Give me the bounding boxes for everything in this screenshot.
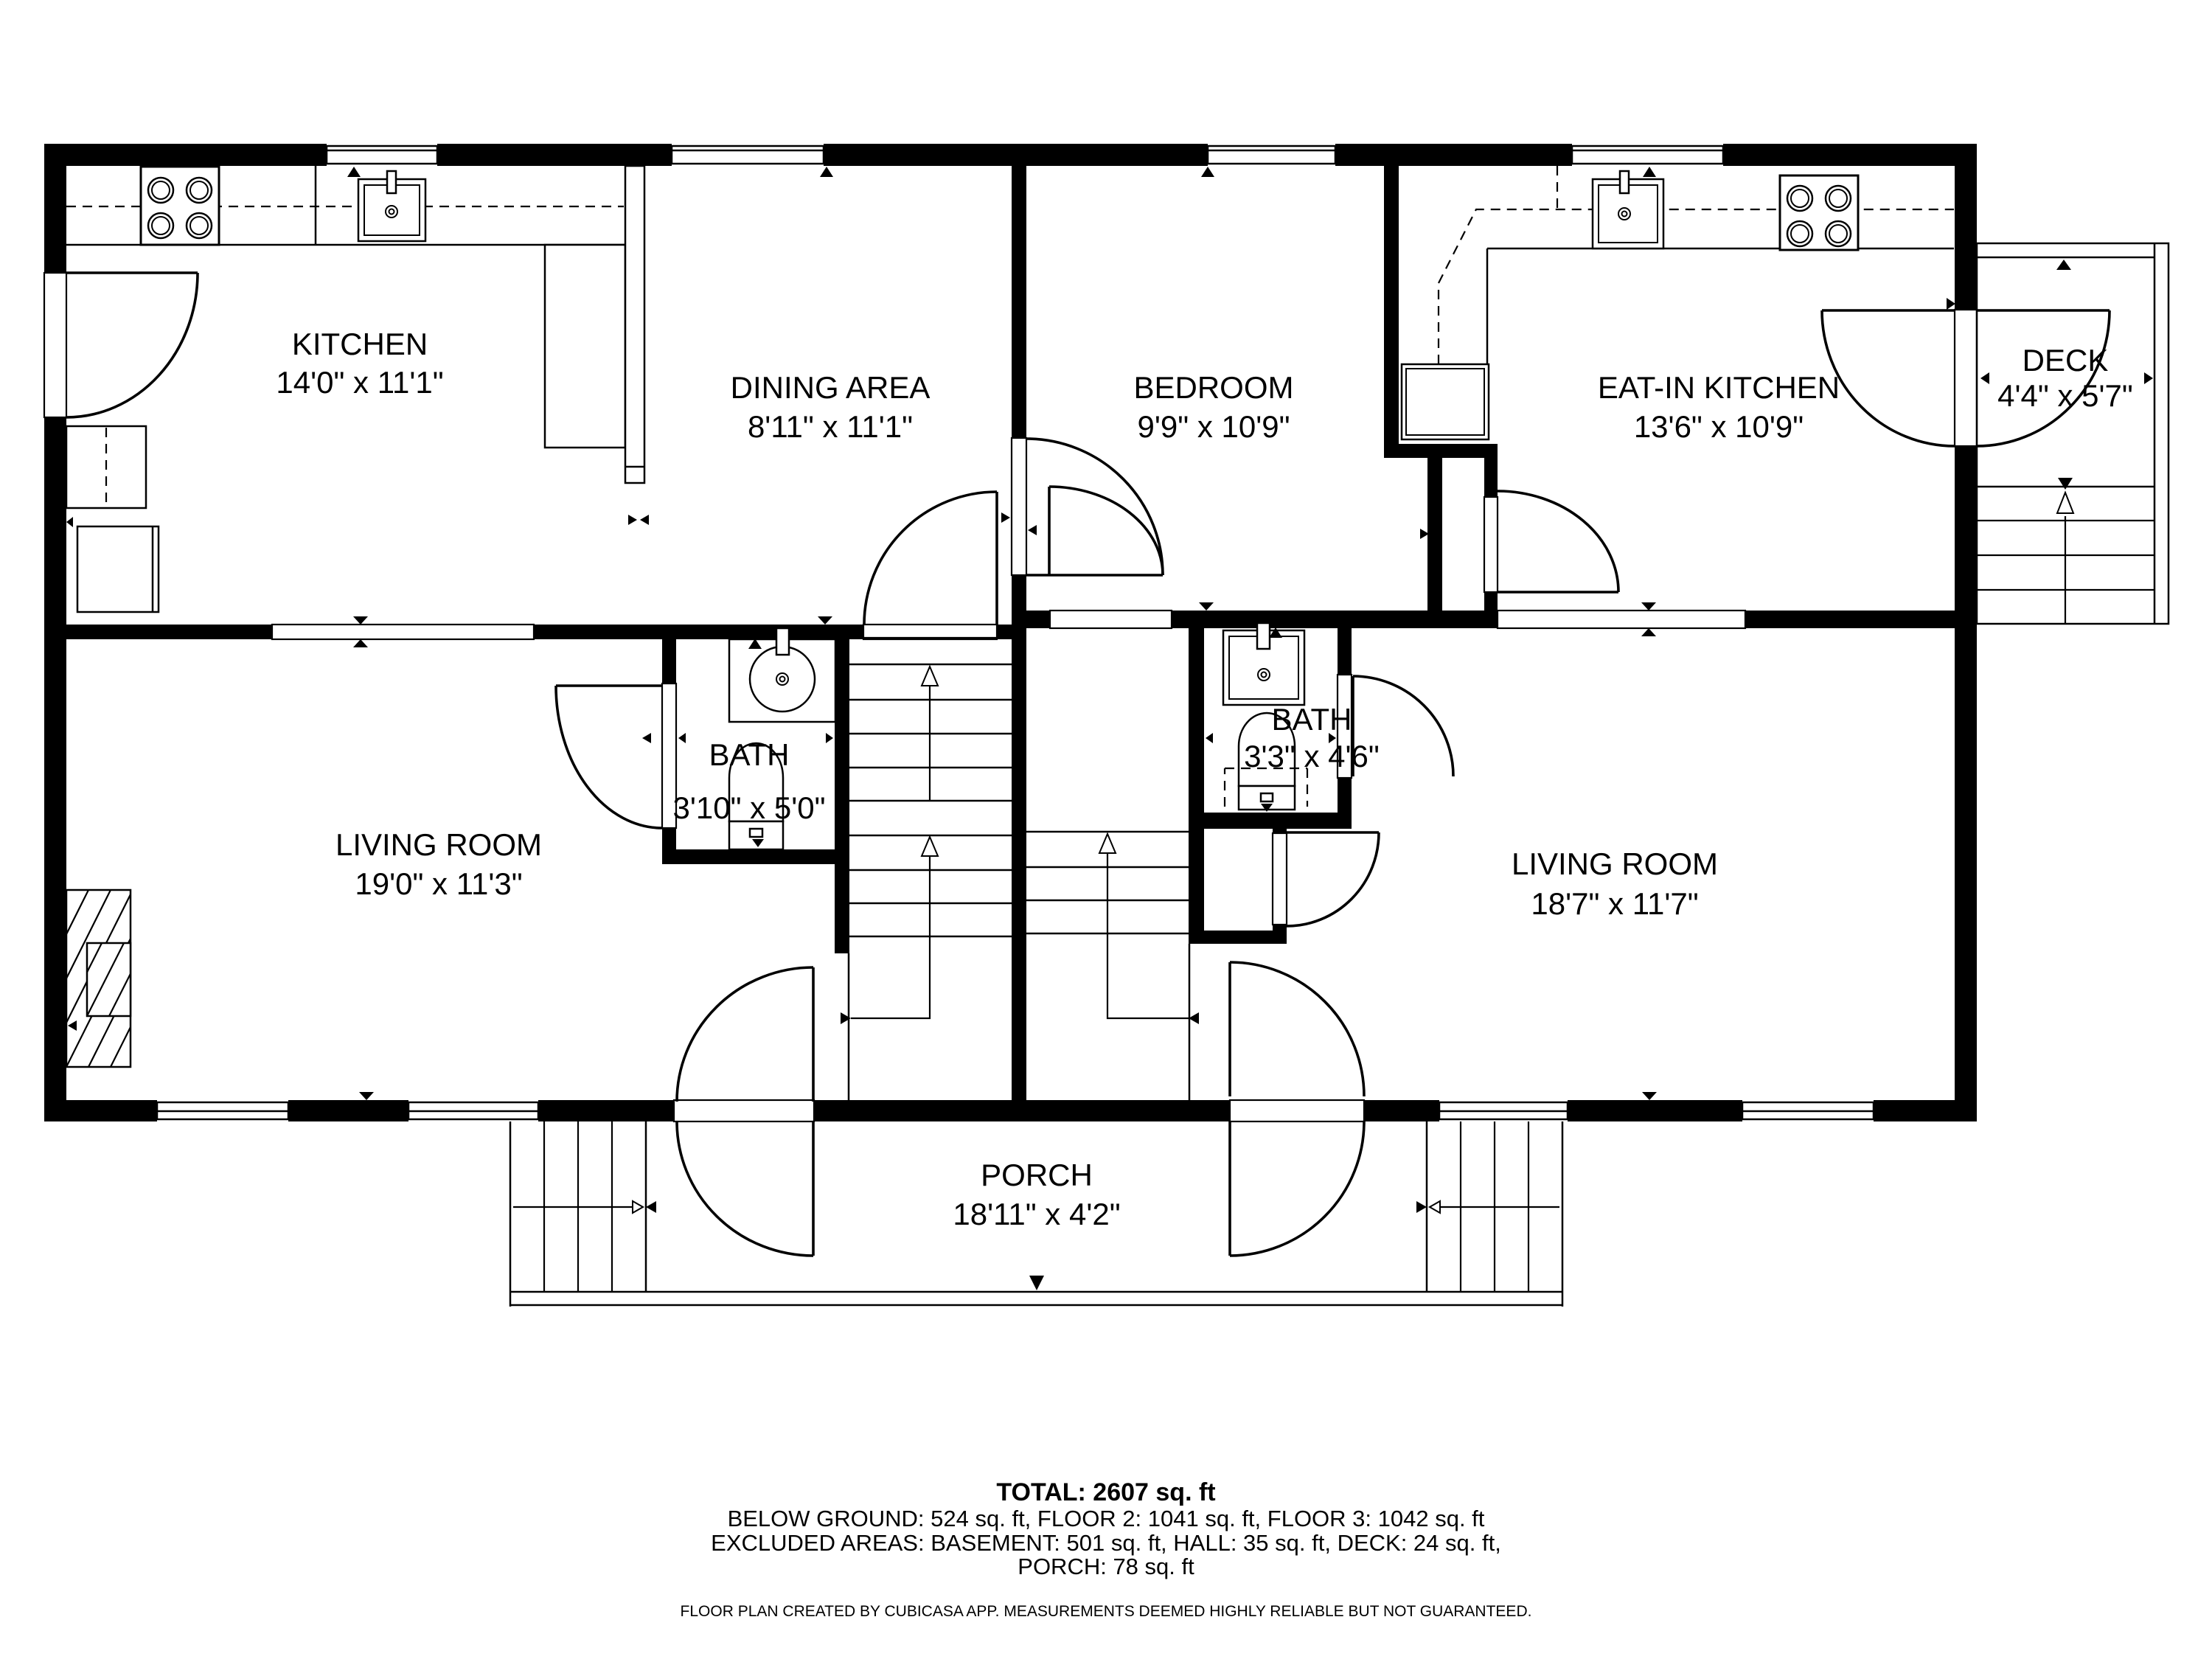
svg-text:BATH: BATH (1272, 702, 1352, 737)
svg-text:EXCLUDED AREAS: BASEMENT: 501: EXCLUDED AREAS: BASEMENT: 501 sq. ft, HA… (711, 1530, 1501, 1556)
svg-text:18'11" x 4'2": 18'11" x 4'2" (953, 1197, 1120, 1231)
svg-text:14'0" x 11'1": 14'0" x 11'1" (276, 365, 443, 400)
svg-text:3'3" x 4'6": 3'3" x 4'6" (1244, 739, 1380, 773)
svg-text:18'7" x 11'7": 18'7" x 11'7" (1531, 886, 1698, 921)
svg-text:PORCH: 78 sq. ft: PORCH: 78 sq. ft (1018, 1554, 1194, 1579)
svg-text:19'0" x 11'3": 19'0" x 11'3" (355, 866, 522, 901)
svg-text:KITCHEN: KITCHEN (292, 327, 428, 361)
svg-text:BATH: BATH (709, 737, 790, 772)
svg-text:DECK: DECK (2023, 343, 2109, 378)
svg-text:LIVING ROOM: LIVING ROOM (1512, 846, 1718, 881)
svg-text:8'11" x 11'1": 8'11" x 11'1" (748, 409, 913, 444)
svg-text:4'4" x 5'7": 4'4" x 5'7" (1997, 378, 2133, 413)
svg-text:13'6" x 10'9": 13'6" x 10'9" (1634, 409, 1804, 444)
svg-text:FLOOR PLAN CREATED BY CUBICASA: FLOOR PLAN CREATED BY CUBICASA APP. MEAS… (681, 1603, 1532, 1620)
svg-text:BEDROOM: BEDROOM (1133, 370, 1293, 405)
svg-text:9'9" x 10'9": 9'9" x 10'9" (1138, 409, 1290, 444)
svg-text:PORCH: PORCH (981, 1158, 1093, 1192)
svg-text:DINING AREA: DINING AREA (731, 370, 931, 405)
svg-text:EAT-IN KITCHEN: EAT-IN KITCHEN (1598, 370, 1840, 405)
svg-text:LIVING ROOM: LIVING ROOM (335, 827, 542, 862)
svg-text:3'10" x 5'0": 3'10" x 5'0" (673, 790, 826, 825)
svg-text:BELOW GROUND: 524 sq. ft, FLOO: BELOW GROUND: 524 sq. ft, FLOOR 2: 1041 … (728, 1506, 1485, 1531)
svg-text:TOTAL: 2607 sq. ft: TOTAL: 2607 sq. ft (996, 1478, 1215, 1506)
